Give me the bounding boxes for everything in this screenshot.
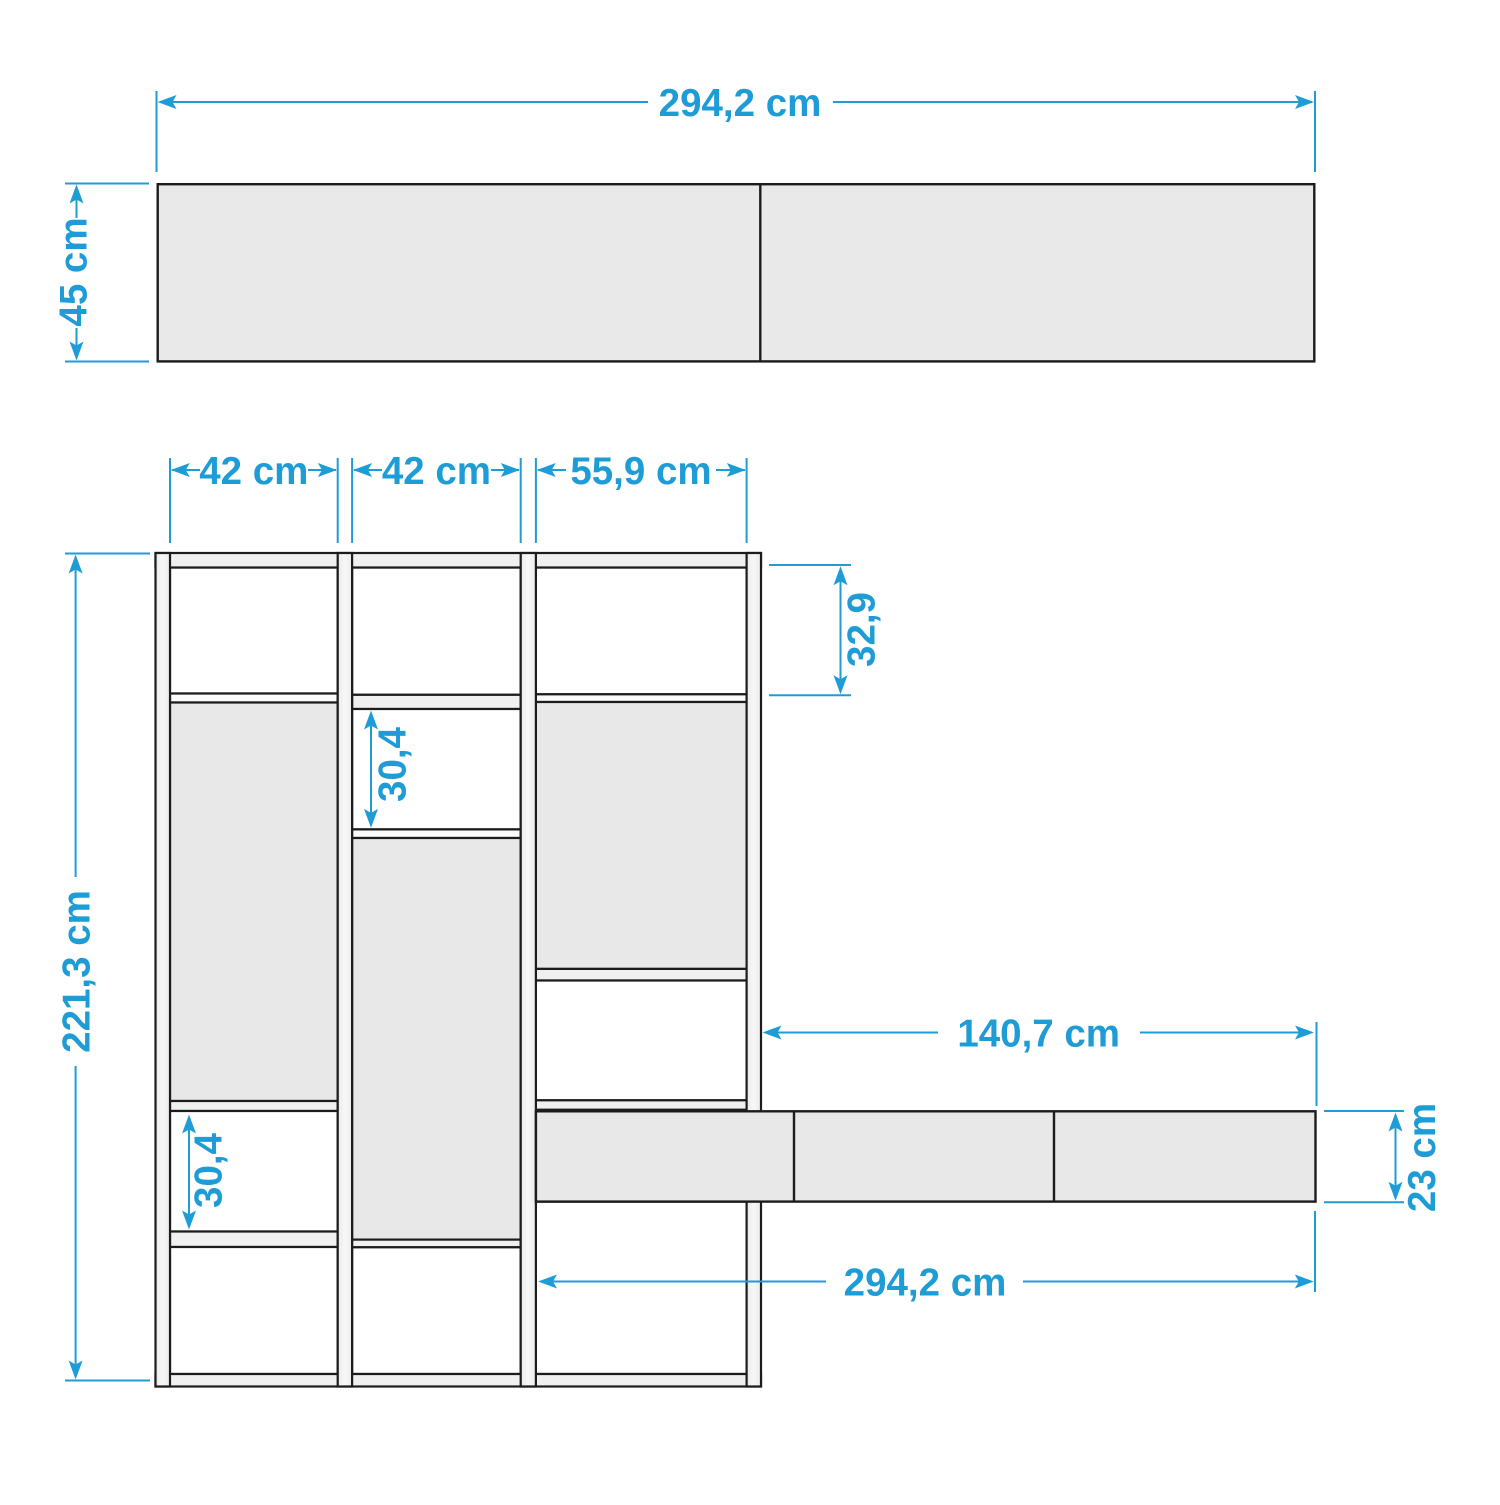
svg-text:23 cm: 23 cm [1401, 1103, 1444, 1212]
svg-text:42 cm: 42 cm [199, 450, 308, 493]
svg-text:221,3 cm: 221,3 cm [56, 890, 99, 1053]
svg-text:140,7 cm: 140,7 cm [957, 1013, 1120, 1056]
svg-text:294,2 cm: 294,2 cm [844, 1262, 1007, 1305]
svg-text:32,9: 32,9 [841, 592, 884, 667]
svg-text:294,2 cm: 294,2 cm [659, 82, 822, 125]
svg-text:30,4: 30,4 [372, 726, 415, 802]
svg-text:55,9 cm: 55,9 cm [570, 450, 711, 493]
svg-text:45 cm: 45 cm [53, 217, 96, 326]
svg-text:42 cm: 42 cm [382, 450, 491, 493]
svg-text:30,4: 30,4 [188, 1132, 231, 1208]
